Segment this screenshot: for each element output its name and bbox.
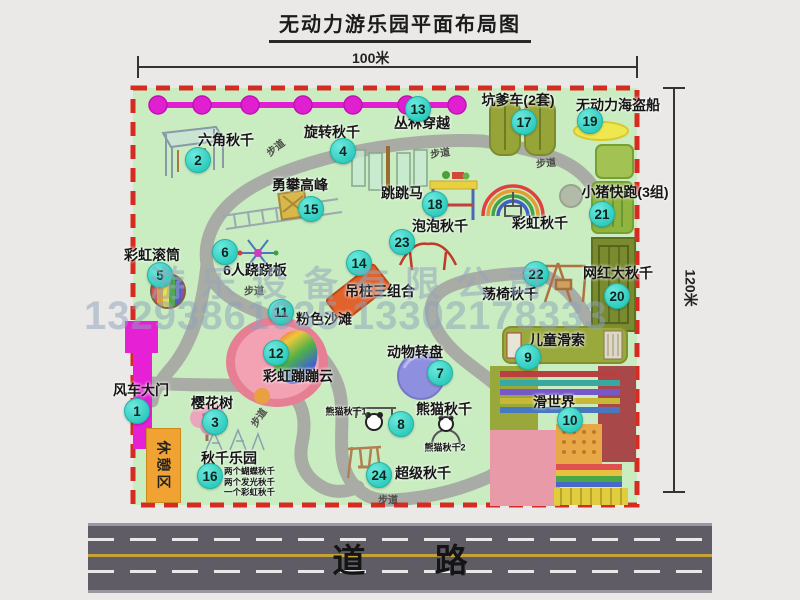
height-dimension-label: 120米 [681,269,701,306]
rotating-swing-icon [352,146,427,192]
park-layout-map: 无动力游乐园平面布局图 100米 120米 休憩区 风车大门1六角秋千2樱花树3… [0,0,800,600]
animal-carousel-icon [398,353,444,399]
road-label: 道 路 [88,526,712,590]
pink-beach-icon [226,317,328,407]
page-title: 无动力游乐园平面布局图 [269,8,531,43]
road: 道 路 [88,523,712,593]
pirate-ship-icon [574,122,628,140]
rest-area-label: 休憩区 [154,440,174,491]
tree-icon [560,185,582,207]
big-swing-icon [592,238,635,331]
kids-zipline-icon [503,327,627,363]
width-dimension-label: 100米 [352,48,389,68]
rest-area: 休憩区 [146,428,181,503]
piggy-run-icon [592,145,633,233]
